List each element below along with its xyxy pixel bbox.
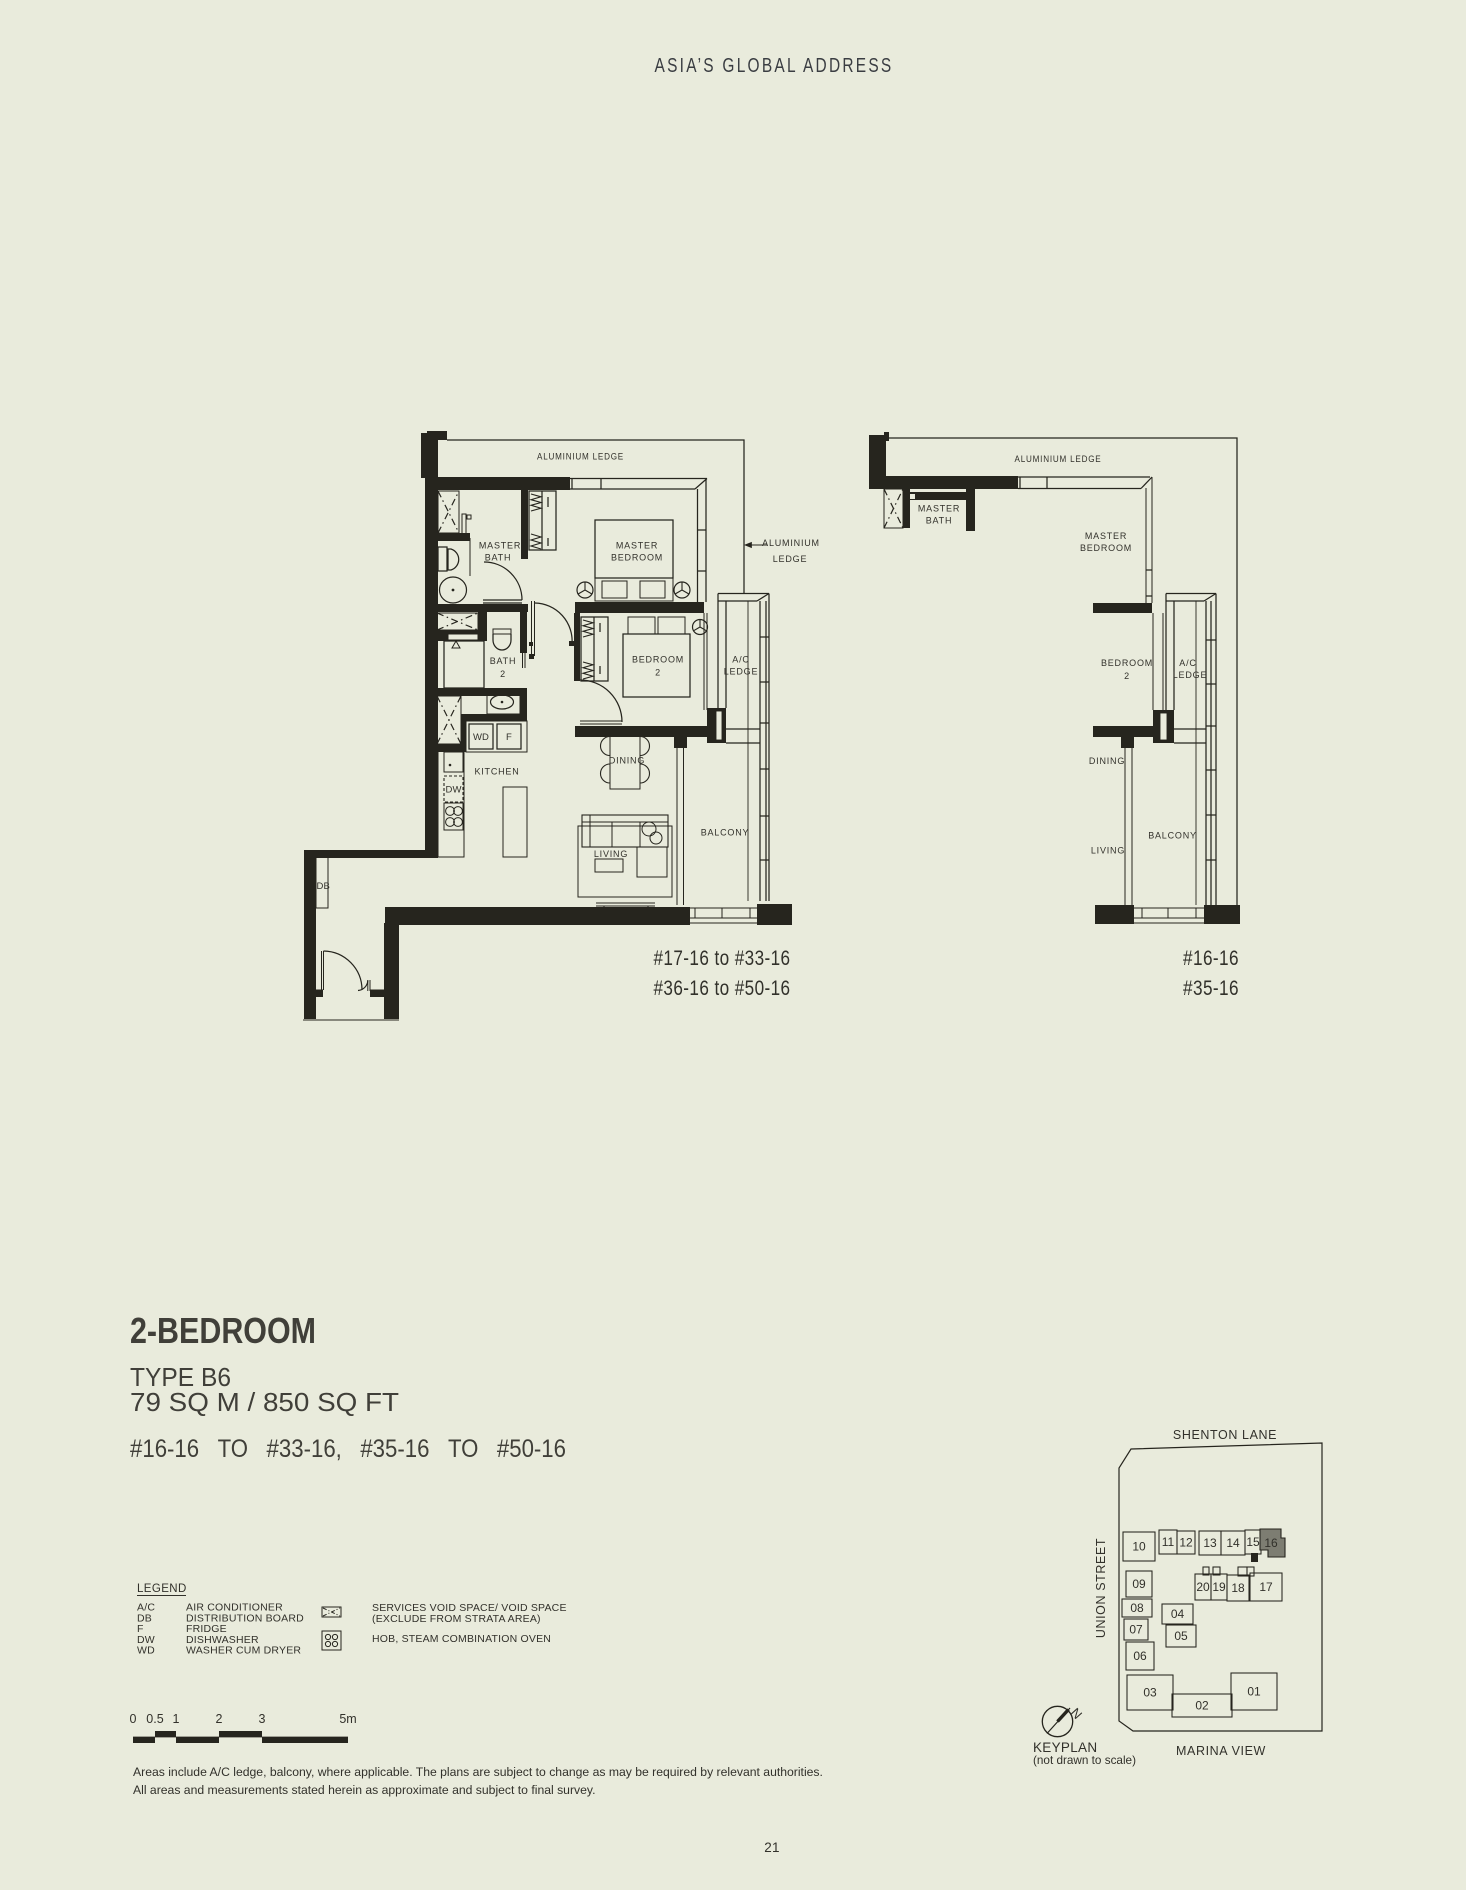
svg-text:#16-16 TO #33-16, #35-16: #16-16 TO #33-16, #35-16 TO #50-16 — [130, 1435, 566, 1463]
svg-text:03: 03 — [1143, 1686, 1157, 1700]
svg-text:LIVING: LIVING — [594, 849, 628, 859]
svg-text:02: 02 — [1195, 1699, 1209, 1713]
svg-text:MASTER: MASTER — [918, 504, 960, 514]
svg-text:DB: DB — [317, 881, 330, 892]
svg-text:BALCONY: BALCONY — [1148, 831, 1197, 841]
svg-text:KITCHEN: KITCHEN — [474, 767, 519, 777]
svg-text:LEDGE: LEDGE — [724, 667, 759, 677]
svg-text:09: 09 — [1132, 1577, 1146, 1591]
svg-text:WASHER CUM DRYER: WASHER CUM DRYER — [186, 1645, 301, 1657]
svg-text:MARINA VIEW: MARINA VIEW — [1176, 1744, 1266, 1758]
svg-text:All areas and measurements sta: All areas and measurements stated herein… — [133, 1783, 595, 1797]
svg-text:#17-16 to #33-16: #17-16 to #33-16 — [654, 947, 791, 970]
svg-text:(EXCLUDE FROM STRATA AREA): (EXCLUDE FROM STRATA AREA) — [372, 1613, 541, 1625]
svg-text:LEGEND: LEGEND — [137, 1583, 187, 1595]
svg-text:2-BEDROOM: 2-BEDROOM — [130, 1310, 316, 1351]
svg-text:Areas include A/C ledge, balco: Areas include A/C ledge, balcony, where … — [133, 1765, 823, 1779]
svg-text:12: 12 — [1179, 1536, 1193, 1550]
svg-text:#16-16: #16-16 — [1183, 947, 1239, 970]
svg-text:19: 19 — [1212, 1580, 1226, 1594]
svg-text:BEDROOM: BEDROOM — [1080, 543, 1132, 553]
svg-text:A/C: A/C — [1179, 658, 1196, 668]
svg-text:2: 2 — [655, 668, 661, 678]
svg-text:10: 10 — [1132, 1540, 1146, 1554]
svg-text:DW: DW — [445, 785, 461, 796]
svg-text:0.5: 0.5 — [146, 1712, 163, 1726]
svg-text:17: 17 — [1259, 1580, 1273, 1594]
svg-text:01: 01 — [1247, 1685, 1261, 1699]
svg-text:05: 05 — [1174, 1629, 1188, 1643]
svg-text:2: 2 — [500, 669, 506, 679]
svg-text:07: 07 — [1129, 1623, 1143, 1637]
svg-text:HOB, STEAM COMBINATION OVEN: HOB, STEAM COMBINATION OVEN — [372, 1633, 551, 1645]
svg-text:5m: 5m — [339, 1712, 356, 1726]
svg-text:ALUMINIUM LEDGE: ALUMINIUM LEDGE — [1015, 454, 1102, 464]
svg-text:2: 2 — [1124, 671, 1130, 681]
svg-text:BALCONY: BALCONY — [701, 828, 750, 838]
svg-text:MASTER: MASTER — [616, 541, 658, 551]
svg-text:BEDROOM: BEDROOM — [632, 655, 684, 665]
svg-text:13: 13 — [1203, 1536, 1217, 1550]
svg-text:0: 0 — [130, 1712, 137, 1726]
svg-text:UNION STREET: UNION STREET — [1094, 1538, 1108, 1638]
svg-text:WD: WD — [473, 732, 489, 743]
svg-text:21: 21 — [764, 1840, 780, 1855]
svg-text:TYPE B6: TYPE B6 — [130, 1364, 231, 1392]
svg-text:DINING: DINING — [609, 756, 645, 766]
svg-text:ALUMINIUM: ALUMINIUM — [762, 538, 820, 548]
svg-text:14: 14 — [1226, 1536, 1240, 1550]
svg-text:BEDROOM: BEDROOM — [611, 553, 663, 563]
svg-text:WD: WD — [137, 1645, 155, 1657]
svg-text:LIVING: LIVING — [1091, 846, 1125, 856]
svg-text:MASTER: MASTER — [1085, 531, 1127, 541]
svg-text:BEDROOM: BEDROOM — [1101, 658, 1153, 668]
svg-text:1: 1 — [173, 1712, 180, 1726]
svg-text:#36-16 to #50-16: #36-16 to #50-16 — [654, 977, 791, 1000]
svg-text:ASIA’S GLOBAL ADDRESS: ASIA’S GLOBAL ADDRESS — [655, 54, 894, 77]
svg-text:MASTER: MASTER — [479, 541, 521, 551]
svg-text:SHENTON LANE: SHENTON LANE — [1173, 1428, 1277, 1442]
svg-text:A/C: A/C — [732, 655, 749, 665]
svg-text:16: 16 — [1264, 1536, 1278, 1550]
svg-text:06: 06 — [1133, 1649, 1147, 1663]
svg-text:BATH: BATH — [485, 553, 512, 563]
svg-text:F: F — [506, 732, 512, 743]
svg-text:3: 3 — [259, 1712, 266, 1726]
svg-text:04: 04 — [1171, 1607, 1185, 1621]
svg-text:08: 08 — [1130, 1601, 1144, 1615]
svg-text:2: 2 — [216, 1712, 223, 1726]
svg-text:ALUMINIUM LEDGE: ALUMINIUM LEDGE — [537, 452, 624, 462]
svg-text:(not drawn to scale): (not drawn to scale) — [1033, 1753, 1136, 1767]
svg-text:#35-16: #35-16 — [1183, 977, 1239, 1000]
svg-text:DINING: DINING — [1089, 756, 1125, 766]
svg-text:18: 18 — [1231, 1581, 1245, 1595]
svg-text:20: 20 — [1196, 1580, 1210, 1594]
svg-text:BATH: BATH — [926, 516, 953, 526]
svg-text:15: 15 — [1246, 1535, 1260, 1549]
svg-text:LEDGE: LEDGE — [773, 554, 808, 564]
svg-text:LEDGE: LEDGE — [1173, 670, 1208, 680]
svg-text:79 SQ M / 850 SQ FT: 79 SQ M / 850 SQ FT — [130, 1389, 399, 1417]
svg-text:BATH: BATH — [490, 656, 517, 666]
svg-text:11: 11 — [1162, 1535, 1175, 1549]
